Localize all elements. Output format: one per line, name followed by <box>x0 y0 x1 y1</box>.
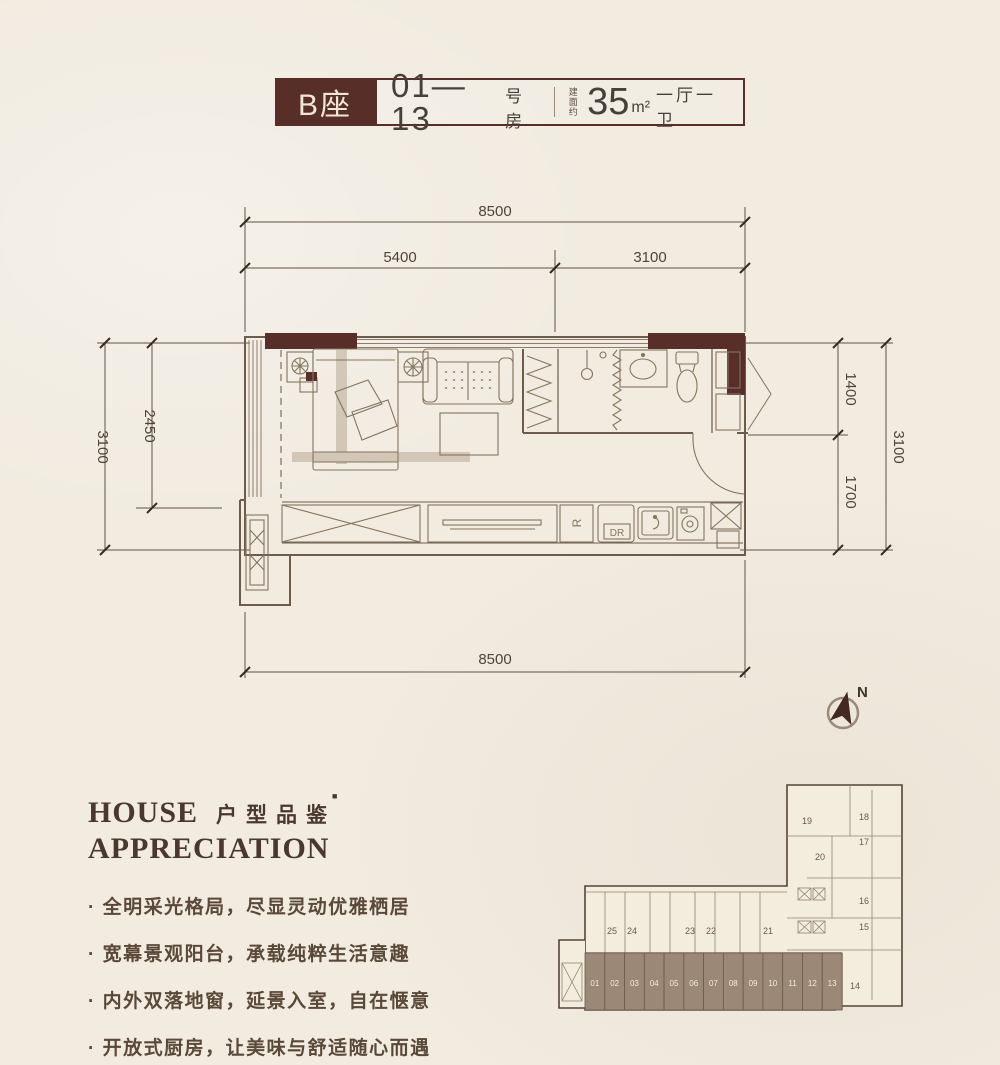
key-plan-unit-number: 24 <box>627 926 637 936</box>
title-english-1: HOUSE <box>88 795 198 831</box>
area-prefix: 建面 约 <box>569 87 585 117</box>
dim-top-left: 5400 <box>383 249 416 266</box>
svg-text:R: R <box>570 518 584 527</box>
dimension-lines <box>97 207 893 678</box>
key-plan-unit-number: 14 <box>850 981 860 991</box>
washbasin <box>620 350 667 387</box>
dim-left-inner: 2450 <box>141 409 158 442</box>
header: B座 01—13 号房 建面 约 35 m² 一厅一卫 <box>275 78 745 126</box>
header-divider <box>554 87 555 117</box>
unit-info-box: 01—13 号房 建面 约 35 m² 一厅一卫 <box>375 78 745 126</box>
key-plan-unit-number: 18 <box>859 812 869 822</box>
exterior-door-mark <box>748 358 771 430</box>
title-english-2: APPRECIATION <box>88 831 350 867</box>
dim-left-outer: 3100 <box>94 430 111 463</box>
planter-ledge <box>282 505 420 542</box>
ac-unit <box>246 515 268 590</box>
key-plan-unit-number: 11 <box>788 979 797 988</box>
dim-bottom-total: 8500 <box>478 651 511 668</box>
room-suffix: 号房 <box>505 82 540 132</box>
room-range: 01—13 <box>391 69 497 135</box>
window-lines <box>249 340 648 498</box>
title-chinese: 户型品鉴■ <box>216 799 350 829</box>
fridge: R <box>560 505 593 542</box>
kitchen-sink <box>638 507 673 539</box>
area-value: 35 <box>587 83 629 121</box>
key-plan-unit-number: 08 <box>729 979 738 988</box>
floor-plan: 8500 5400 3100 3100 2450 1400 1700 3100 … <box>85 185 915 770</box>
seal-mark-icon: ■ <box>332 791 346 801</box>
bed <box>313 349 398 470</box>
flyer-page: B座 01—13 号房 建面 约 35 m² 一厅一卫 <box>0 0 1000 1065</box>
dim-top-total: 8500 <box>478 203 511 220</box>
dimension-ticks <box>100 217 891 677</box>
block-badge: B座 <box>275 78 375 126</box>
compass: N <box>828 684 868 728</box>
coffee-table <box>440 413 498 455</box>
key-plan-unit-number: 12 <box>808 979 817 988</box>
key-plan-unit-number: 07 <box>709 979 718 988</box>
shower <box>582 350 607 380</box>
area-prefix-line1: 建面 <box>569 87 585 107</box>
tv-console <box>428 505 557 542</box>
key-plan-unit-number: 03 <box>630 979 639 988</box>
section-title: HOUSE 户型品鉴■ APPRECIATION <box>88 795 350 867</box>
key-plan-unit-number: 15 <box>859 922 869 932</box>
key-plan-unit-number: 19 <box>802 816 812 826</box>
key-plan-unit-number: 20 <box>815 852 825 862</box>
key-plan-unit-number: 13 <box>828 979 837 988</box>
feature-item: · 宽幕景观阳台，承载纯粹生活意趣 <box>88 931 431 978</box>
feature-item: · 开放式厨房，让美味与舒适随心而遇 <box>88 1025 431 1065</box>
key-plan-unit-number: 16 <box>859 896 869 906</box>
rug <box>292 350 470 464</box>
dim-right-bottom: 1700 <box>842 475 859 508</box>
key-plan-unit-number: 17 <box>859 837 869 847</box>
key-plan-unit-number: 04 <box>650 979 659 988</box>
area-unit: m² <box>631 99 650 117</box>
key-plan-unit-number: 22 <box>706 926 716 936</box>
key-plan-unit-number: 01 <box>590 979 599 988</box>
entry-door <box>693 433 744 494</box>
feature-item: · 全明采光格局，尽显灵动优雅栖居 <box>88 884 431 931</box>
compass-north-label: N <box>857 684 868 701</box>
area-prefix-line2: 约 <box>569 107 585 117</box>
key-plan-unit-number: 25 <box>607 926 617 936</box>
dim-right-top: 1400 <box>842 372 859 405</box>
key-plan-unit-number: 05 <box>670 979 679 988</box>
key-plan-unit-number: 06 <box>689 979 698 988</box>
layout-type: 一厅一卫 <box>656 81 729 131</box>
sofa <box>423 349 513 404</box>
dim-right-outer: 3100 <box>890 430 907 463</box>
svg-text:DR: DR <box>610 528 624 539</box>
furniture: R DR <box>246 349 771 590</box>
key-plan: 0102030405060708091011121325242322211918… <box>552 778 952 1050</box>
key-plan-unit-number: 02 <box>610 979 619 988</box>
dim-top-right: 3100 <box>633 249 666 266</box>
key-plan-unit-number: 10 <box>768 979 777 988</box>
feature-item: · 内外双落地窗，延景入室，自在惬意 <box>88 978 431 1025</box>
washing-machine <box>677 507 704 540</box>
key-plan-unit-number: 09 <box>749 979 758 988</box>
shoe-cabinet <box>711 503 741 548</box>
feature-list: · 全明采光格局，尽显灵动优雅栖居· 宽幕景观阳台，承载纯粹生活意趣· 内外双落… <box>88 884 431 1065</box>
dryer-cabinet: DR <box>598 505 634 542</box>
wardrobe <box>527 356 551 428</box>
toilet <box>676 352 698 402</box>
key-plan-unit-number: 21 <box>763 926 773 936</box>
key-plan-unit-number: 23 <box>685 926 695 936</box>
